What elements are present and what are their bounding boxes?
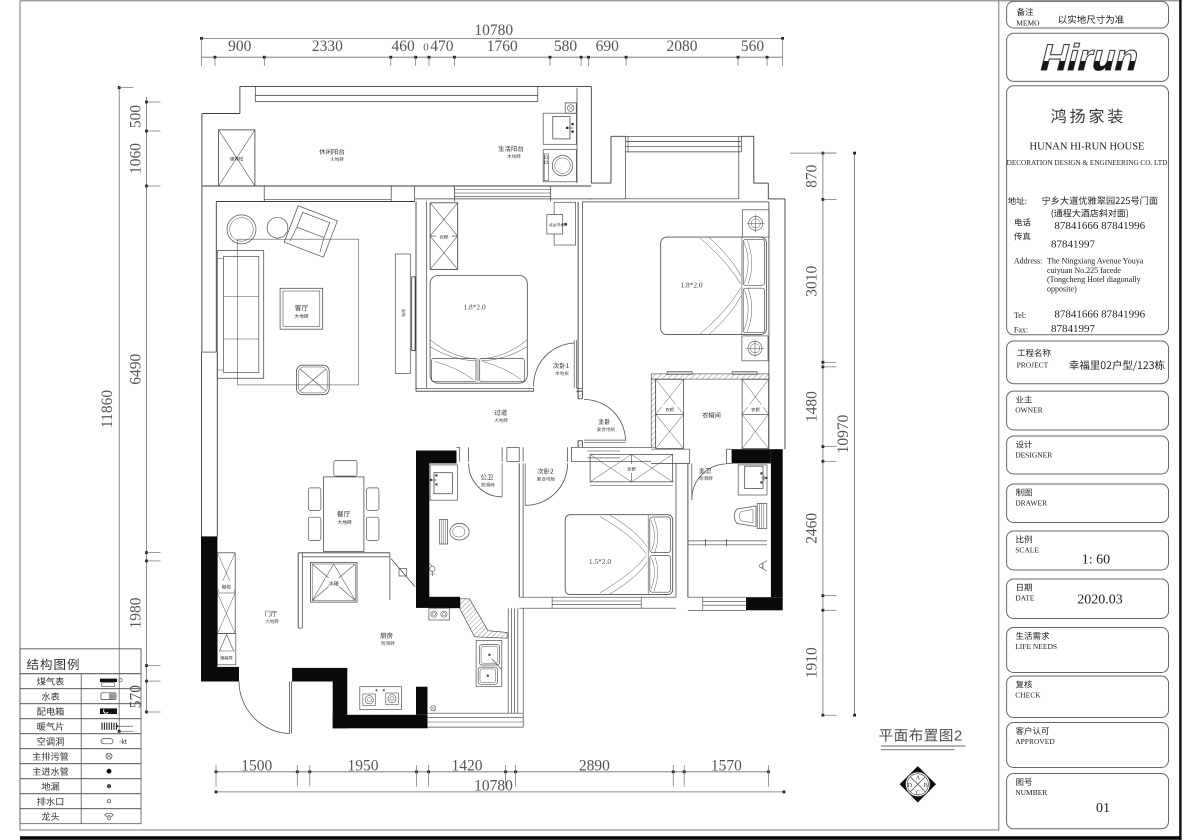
svg-text:DESIGNER: DESIGNER (1015, 451, 1052, 460)
svg-text:MEMO: MEMO (1016, 19, 1040, 28)
svg-text:OWNER: OWNER (1015, 406, 1042, 415)
svg-text:10780: 10780 (474, 777, 513, 794)
svg-text:A: A (915, 774, 920, 781)
svg-text:APPROVED: APPROVED (1015, 737, 1055, 746)
svg-text:The Ningxiang Avenue Youya: The Ningxiang Avenue Youya (1047, 257, 1144, 266)
svg-text:3010: 3010 (804, 265, 821, 296)
svg-text:87841997: 87841997 (1051, 323, 1096, 335)
svg-text:CHECK: CHECK (1015, 691, 1041, 700)
svg-text:470: 470 (430, 38, 454, 55)
svg-text:Address:: Address: (1014, 257, 1042, 266)
svg-text:2: 2 (954, 728, 962, 745)
svg-text:01: 01 (1096, 801, 1110, 816)
svg-text:460: 460 (391, 38, 415, 55)
svg-text:6490: 6490 (128, 354, 145, 385)
svg-text:2460: 2460 (804, 513, 821, 544)
svg-text:D: D (907, 782, 912, 789)
svg-text:cuiyuan No.225 facede: cuiyuan No.225 facede (1047, 266, 1121, 275)
svg-text:B: B (924, 782, 929, 789)
svg-text:570: 570 (128, 685, 145, 709)
svg-text:580: 580 (554, 38, 578, 55)
svg-text:500: 500 (128, 105, 145, 129)
svg-text:0: 0 (423, 42, 429, 54)
svg-text:NUMBER: NUMBER (1015, 788, 1047, 797)
svg-text:2020.03: 2020.03 (1077, 593, 1123, 608)
svg-text:Tel:: Tel: (1014, 311, 1026, 320)
svg-text:HUNAN HI-RUN HOUSE: HUNAN HI-RUN HOUSE (1030, 142, 1145, 153)
svg-text:2330: 2330 (312, 38, 343, 55)
svg-text:LIFE NEEDS: LIFE NEEDS (1015, 642, 1057, 651)
svg-text:2890: 2890 (579, 757, 610, 774)
svg-text:10970: 10970 (835, 414, 852, 453)
svg-text:1420: 1420 (452, 757, 483, 774)
svg-text:DECORATION DESIGN & ENGINEER: DECORATION DESIGN & ENGINEERING CO. LTD (1007, 159, 1168, 167)
svg-text:Fax:: Fax: (1014, 326, 1028, 335)
svg-text:10780: 10780 (474, 22, 513, 39)
svg-text:1.8*2.0: 1.8*2.0 (680, 280, 702, 289)
svg-text:11860: 11860 (99, 390, 116, 428)
svg-text:C: C (916, 789, 920, 796)
svg-text:87841997: 87841997 (1051, 239, 1096, 251)
svg-text:2080: 2080 (667, 38, 698, 55)
svg-text:SCALE: SCALE (1015, 546, 1039, 555)
svg-text:(Tongcheng Hotel diagonally: (Tongcheng Hotel diagonally (1047, 275, 1141, 284)
svg-text:1: 60: 1: 60 (1082, 553, 1110, 568)
svg-text:1.8*2.0: 1.8*2.0 (464, 302, 486, 311)
svg-text:1910: 1910 (804, 647, 821, 678)
svg-text:560: 560 (741, 38, 765, 55)
svg-text:-kt: -kt (119, 739, 127, 746)
svg-text:opposite): opposite) (1047, 284, 1077, 293)
svg-text:900: 900 (228, 38, 252, 55)
svg-text:PROJECT: PROJECT (1017, 361, 1049, 370)
svg-text:870: 870 (804, 164, 821, 188)
svg-text:87841666 87841996: 87841666 87841996 (1054, 309, 1145, 321)
svg-text:1950: 1950 (348, 757, 379, 774)
svg-text:1570: 1570 (711, 757, 742, 774)
svg-text:1980: 1980 (128, 597, 145, 628)
svg-text:1060: 1060 (128, 143, 145, 174)
svg-text:1.5*2.0: 1.5*2.0 (589, 557, 611, 566)
svg-text:1500: 1500 (241, 757, 272, 774)
svg-text:1760: 1760 (487, 38, 518, 55)
svg-text:1480: 1480 (804, 391, 821, 422)
svg-text:DRAWER: DRAWER (1015, 499, 1047, 508)
svg-text:87841666 87841996: 87841666 87841996 (1054, 220, 1145, 232)
svg-text:DATE: DATE (1015, 594, 1035, 603)
svg-text:690: 690 (596, 38, 620, 55)
